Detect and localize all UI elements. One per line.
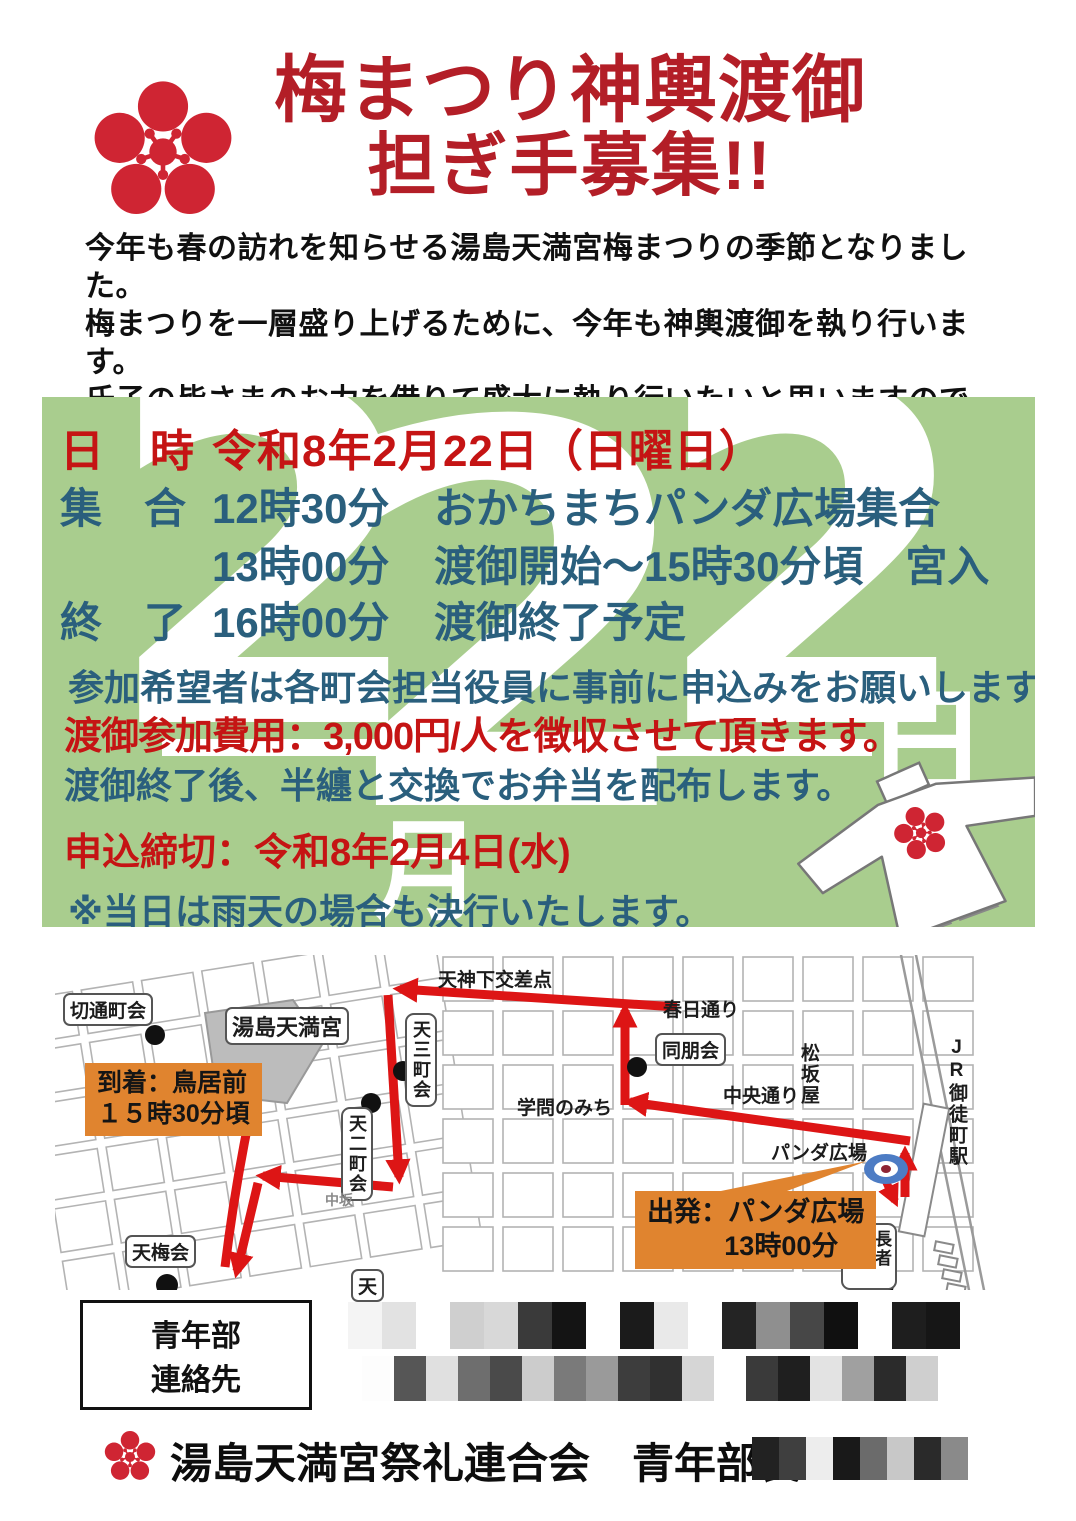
- mosaic-block: [554, 1356, 586, 1401]
- row-desc: 渡御開始～15時30分頃 宮入: [434, 533, 989, 594]
- city-block: [106, 1139, 164, 1191]
- map-label-ten3-chokai: 天三町会: [405, 1013, 437, 1107]
- mosaic-block: [874, 1356, 906, 1401]
- mosaic-block: [522, 1356, 554, 1401]
- mosaic-block: [348, 1302, 382, 1349]
- mosaic-block: [752, 1437, 779, 1480]
- city-block: [287, 1110, 345, 1162]
- map-label-ten2-chokai: 天二町会: [341, 1107, 373, 1201]
- schedule-row: 13時00分 渡御開始～15時30分頃 宮入: [60, 533, 989, 594]
- city-block: [503, 1173, 553, 1217]
- contact-label-line1: 青年部: [83, 1311, 309, 1355]
- mosaic-block: [926, 1302, 960, 1349]
- city-block: [62, 1253, 120, 1290]
- mosaic-block: [842, 1356, 874, 1401]
- city-block: [55, 1044, 88, 1096]
- row-desc: おかちまちパンダ広場集合: [434, 475, 940, 536]
- rain-note: ※当日は雨天の場合も決行いたします。: [68, 883, 711, 927]
- application-note: 参加希望者は各町会担当役員に事前に申込みをお願いします。: [68, 659, 1035, 711]
- censored-name-mosaic: [752, 1437, 968, 1480]
- row-label: [60, 533, 212, 594]
- arrival-line2: １５時30分頃: [97, 1099, 250, 1130]
- row-label: 集 合: [60, 475, 212, 536]
- mosaic-block: [586, 1302, 620, 1349]
- intro-line: 梅まつりを一層盛り上げるために、今年も神輿渡御を執り行います。: [85, 306, 1025, 382]
- map-label-gakumon-no-michi: 学問のみち: [517, 1093, 612, 1120]
- arrival-line1: 到着：鳥居前: [97, 1068, 250, 1099]
- map-label-ten-partial: 天: [351, 1269, 384, 1302]
- poster-title: 梅まつり神輿渡御 担ぎ手募集!!: [150, 52, 990, 203]
- contact-label-box: 青年部 連絡先: [80, 1300, 312, 1410]
- departure-callout: 出発：パンダ広場 13時00分: [635, 1191, 876, 1269]
- mosaic-block: [714, 1356, 746, 1401]
- arrival-callout: 到着：鳥居前 １５時30分頃: [85, 1063, 262, 1136]
- mosaic-block: [790, 1302, 824, 1349]
- route-map: 切通町会 湯島天満宮 天神下交差点 春日通り 同朋会 松坂屋 中央通り 学問のみ…: [55, 955, 1035, 1290]
- city-block: [863, 1011, 913, 1055]
- city-block: [55, 1149, 104, 1201]
- mosaic-block: [941, 1437, 968, 1480]
- organization-signature: 湯島天満宮祭礼連合会 青年部長: [170, 1430, 800, 1491]
- city-block: [303, 1215, 361, 1267]
- city-block: [443, 1065, 493, 1109]
- map-label-nakasaka: 中坂: [325, 1190, 353, 1210]
- plum-blossom-crest-icon: [101, 1429, 159, 1485]
- city-block: [563, 1011, 613, 1055]
- schedule-date-line: 日 時令和8年2月22日（日曜日）: [60, 415, 764, 479]
- map-label-matsuzakaya: 松坂屋: [795, 1043, 822, 1106]
- city-block: [563, 957, 613, 1001]
- censored-phone-mosaic: [348, 1302, 960, 1349]
- city-block: [503, 1011, 553, 1055]
- mosaic-block: [833, 1437, 860, 1480]
- city-block: [563, 1173, 613, 1217]
- title-line-1: 梅まつり神輿渡御: [150, 52, 990, 129]
- row-time: 12時30分: [212, 475, 434, 536]
- mosaic-block: [887, 1437, 914, 1480]
- mosaic-block: [892, 1302, 926, 1349]
- city-block: [166, 1129, 224, 1181]
- city-block: [443, 1119, 493, 1163]
- city-block: [382, 955, 440, 986]
- deadline-note: 申込締切：令和8年2月4日(水): [64, 821, 571, 876]
- mosaic-block: [860, 1437, 887, 1480]
- mosaic-block: [682, 1356, 714, 1401]
- city-block: [623, 1119, 673, 1163]
- mosaic-block: [722, 1302, 756, 1349]
- city-block: [803, 957, 853, 1001]
- city-block: [443, 1173, 493, 1217]
- map-label-panda-hiroba: パンダ広場: [771, 1138, 867, 1165]
- mosaic-block: [746, 1356, 778, 1401]
- city-block: [243, 1225, 301, 1277]
- mosaic-block: [484, 1302, 518, 1349]
- city-block: [563, 1119, 613, 1163]
- city-block: [683, 1119, 733, 1163]
- map-label-jr-okachimachi: JR御徒町駅: [943, 1037, 970, 1167]
- city-block: [364, 1206, 422, 1258]
- mosaic-block: [490, 1356, 522, 1401]
- city-block: [55, 1201, 112, 1253]
- city-block: [443, 1011, 493, 1055]
- censored-phone-mosaic: [362, 1356, 938, 1401]
- festival-flyer: 梅まつり神輿渡御 担ぎ手募集!! 今年も春の訪れを知らせる湯島天満宮梅まつりの季…: [0, 0, 1076, 1521]
- panda-plaza-marker: [864, 1154, 908, 1184]
- map-label-tenbaikai: 天梅会: [125, 1235, 196, 1268]
- mosaic-block: [618, 1356, 650, 1401]
- mosaic-block: [858, 1302, 892, 1349]
- mosaic-block: [450, 1302, 484, 1349]
- mosaic-block: [914, 1437, 941, 1480]
- row-desc: 渡御終了予定: [434, 589, 686, 650]
- row-time: 13時00分: [212, 533, 434, 594]
- map-label-kasuga-dori: 春日通り: [663, 995, 739, 1022]
- mosaic-block: [654, 1302, 688, 1349]
- mosaic-block: [416, 1302, 450, 1349]
- mosaic-block: [586, 1356, 618, 1401]
- city-block: [443, 1227, 493, 1271]
- mosaic-block: [778, 1356, 810, 1401]
- city-block: [863, 1065, 913, 1109]
- map-label-tenjinshita: 天神下交差点: [438, 965, 552, 992]
- mosaic-block: [394, 1356, 426, 1401]
- mosaic-block: [620, 1302, 654, 1349]
- mosaic-block: [806, 1437, 833, 1480]
- schedule-row: 終 了 16時00分 渡御終了予定: [60, 589, 686, 650]
- city-block: [503, 1119, 553, 1163]
- mosaic-block: [426, 1356, 458, 1401]
- date-value: 令和8年2月22日（日曜日）: [212, 415, 764, 479]
- fee-note: 渡御参加費用：3,000円/人を徴収させて頂きます。: [64, 705, 900, 760]
- city-block: [923, 957, 973, 1001]
- map-label-domeikai: 同朋会: [655, 1033, 726, 1066]
- mosaic-block: [458, 1356, 490, 1401]
- mosaic-block: [552, 1302, 586, 1349]
- schedule-box: 2 月 2 2 日 日 時令和8年2月22日（日曜日） 集 合 12時30分 お…: [42, 397, 1035, 927]
- city-block: [743, 1011, 793, 1055]
- railway-tie: [946, 1283, 965, 1290]
- mosaic-block: [810, 1356, 842, 1401]
- map-label-kiritoshi: 切通町会: [63, 993, 153, 1026]
- mosaic-block: [756, 1302, 790, 1349]
- date-label: 日 時: [60, 415, 212, 479]
- city-block: [175, 1182, 233, 1234]
- mosaic-block: [688, 1302, 722, 1349]
- mosaic-block: [362, 1356, 394, 1401]
- mosaic-block: [779, 1437, 806, 1480]
- mosaic-block: [824, 1302, 858, 1349]
- map-label-chuo-dori: 中央通り: [723, 1081, 799, 1108]
- happi-coat-illustration: [782, 749, 1035, 927]
- city-block: [262, 955, 320, 1005]
- schedule-row: 集 合 12時30分 おかちまちパンダ広場集合: [60, 475, 940, 536]
- departure-line2: 13時00分: [647, 1230, 864, 1264]
- city-block: [322, 955, 380, 995]
- contact-label-line2: 連絡先: [83, 1355, 309, 1399]
- intro-line: 今年も春の訪れを知らせる湯島天満宮梅まつりの季節となりました。: [85, 230, 1025, 306]
- row-label: 終 了: [60, 589, 212, 650]
- map-label-yushima-tenmangu: 湯島天満宮: [225, 1007, 349, 1045]
- departure-line1: 出発：パンダ広場: [647, 1196, 864, 1230]
- mosaic-block: [518, 1302, 552, 1349]
- mosaic-block: [650, 1356, 682, 1401]
- city-block: [743, 957, 793, 1001]
- bento-note: 渡御終了後、半纏と交換でお弁当を配布します。: [64, 757, 852, 809]
- mosaic-block: [906, 1356, 938, 1401]
- city-block: [503, 1227, 553, 1271]
- title-line-2: 担ぎ手募集!!: [150, 129, 990, 202]
- row-time: 16時00分: [212, 589, 434, 650]
- mosaic-block: [382, 1302, 416, 1349]
- city-block: [563, 1227, 613, 1271]
